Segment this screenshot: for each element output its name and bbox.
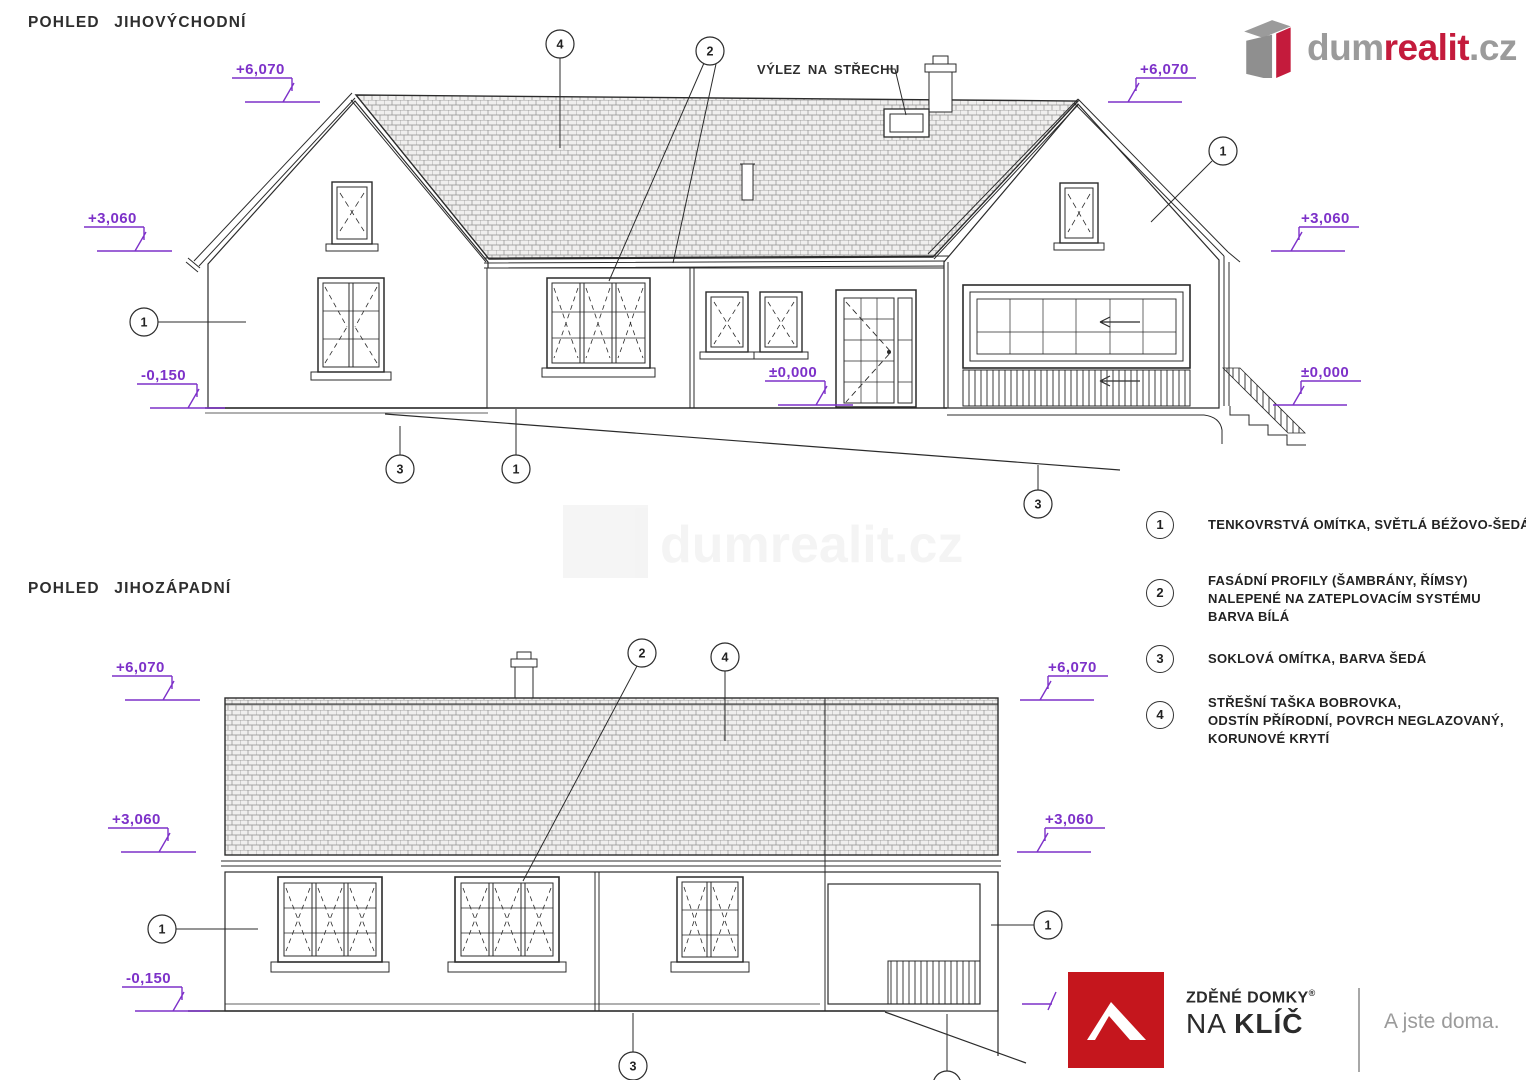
legend-circle-1: 1 xyxy=(1146,511,1174,539)
legend-item-2-text: BARVA BÍLÁ xyxy=(1208,608,1481,626)
zdene-domky-line2: NA KLÍČ xyxy=(1186,1008,1303,1040)
svg-text:+6,070: +6,070 xyxy=(1140,61,1189,78)
terrace-railing xyxy=(963,370,1190,406)
svg-text:3: 3 xyxy=(397,463,404,477)
callout-1: 1 xyxy=(130,308,158,336)
zdene-domky-logo-mark[interactable] xyxy=(1068,972,1164,1068)
svg-text:1: 1 xyxy=(513,463,520,477)
legend-item-2-text: NALEPENÉ NA ZATEPLOVACÍM SYSTÉMU xyxy=(1208,590,1481,608)
legend-circle-2: 2 xyxy=(1146,579,1174,607)
vent-pipe xyxy=(740,164,755,200)
svg-text:4: 4 xyxy=(557,38,564,52)
dumrealit-cz: .cz xyxy=(1469,27,1517,68)
legend-item-4-text: STŘEŠNÍ TAŠKA BOBROVKA, xyxy=(1208,694,1504,712)
legend-item-3: 3 SOKLOVÁ OMÍTKA, BARVA ŠEDÁ xyxy=(1146,645,1516,685)
legend-item-1: 1 TENKOVRSTVÁ OMÍTKA, SVĚTLÁ BÉŽOVO-ŠEDÁ xyxy=(1146,511,1516,551)
legend-item-1-text: TENKOVRSTVÁ OMÍTKA, SVĚTLÁ BÉŽOVO-ŠEDÁ xyxy=(1208,516,1526,534)
eave-band xyxy=(221,861,1001,872)
terrace-edge xyxy=(947,415,1222,444)
zdene-domky-tagline: A jste doma. xyxy=(1384,1010,1500,1034)
drawing-sheet: { "page": { "title_top": "POHLED JIHOVÝC… xyxy=(0,0,1526,1080)
chimney xyxy=(511,652,537,700)
callout-3: 3 xyxy=(1024,490,1052,518)
left-gutter xyxy=(186,258,200,272)
terrain-slope xyxy=(885,1012,1026,1063)
legend-circle-3: 3 xyxy=(1146,645,1174,673)
svg-text:±0,000: ±0,000 xyxy=(769,364,817,381)
callout-1: 1 xyxy=(1034,911,1062,939)
svg-text:2: 2 xyxy=(707,45,714,59)
svg-text:3: 3 xyxy=(630,1060,637,1074)
svg-text:2: 2 xyxy=(639,647,646,661)
svg-text:1: 1 xyxy=(141,316,148,330)
chimney xyxy=(925,56,956,112)
legend-circle-4: 4 xyxy=(1146,701,1174,729)
callout-2: 2 xyxy=(628,639,656,667)
svg-text:dumrealit.cz: dumrealit.cz xyxy=(660,516,963,574)
callout-partial xyxy=(933,1071,961,1080)
svg-text:+6,070: +6,070 xyxy=(116,659,165,676)
svg-text:±0,000: ±0,000 xyxy=(1301,364,1349,381)
legend-item-2: 2 FASÁDNÍ PROFILY (ŠAMBRÁNY, ŘÍMSY) NALE… xyxy=(1146,572,1516,630)
legend-item-4-text: KORUNOVÉ KRYTÍ xyxy=(1208,730,1504,748)
callout-4: 4 xyxy=(546,30,574,58)
partial-level-mark xyxy=(1022,992,1056,1010)
svg-text:-0,150: -0,150 xyxy=(126,970,171,987)
callout-1: 1 xyxy=(502,455,530,483)
legend-item-3-text: SOKLOVÁ OMÍTKA, BARVA ŠEDÁ xyxy=(1208,650,1426,668)
garage-railing xyxy=(888,961,980,1004)
dumrealit-logo[interactable]: dumrealit.cz xyxy=(1243,16,1517,78)
svg-text:+6,070: +6,070 xyxy=(236,61,285,78)
watermark: dumrealit.cz xyxy=(563,505,963,578)
dumrealit-building-icon xyxy=(1243,16,1297,78)
southwest-elevation xyxy=(176,652,1034,1071)
svg-text:+3,060: +3,060 xyxy=(1301,210,1350,227)
wall xyxy=(225,872,998,1011)
stair-railing xyxy=(1223,368,1305,433)
legend-item-4: 4 STŘEŠNÍ TAŠKA BOBROVKA, ODSTÍN PŘÍRODN… xyxy=(1146,694,1516,752)
callout-3: 3 xyxy=(386,455,414,483)
svg-text:+6,070: +6,070 xyxy=(1048,659,1097,676)
callout-1: 1 xyxy=(1209,137,1237,165)
legend-item-4-text: ODSTÍN PŘÍRODNÍ, POVRCH NEGLAZOVANÝ, xyxy=(1208,712,1504,730)
svg-text:1: 1 xyxy=(1045,919,1052,933)
svg-text:+3,060: +3,060 xyxy=(112,811,161,828)
roof-icon xyxy=(1080,988,1152,1052)
zdene-domky-line1: ZDĚNÉ DOMKY® xyxy=(1186,988,1316,1007)
southeast-elevation xyxy=(158,56,1306,490)
svg-text:3: 3 xyxy=(1035,498,1042,512)
dumrealit-wordmark: dumrealit.cz xyxy=(1307,29,1517,66)
callout-4: 4 xyxy=(711,643,739,671)
svg-text:1: 1 xyxy=(1220,145,1227,159)
legend-item-2-text: FASÁDNÍ PROFILY (ŠAMBRÁNY, ŘÍMSY) xyxy=(1208,572,1481,590)
svg-text:+3,060: +3,060 xyxy=(1045,811,1094,828)
svg-text:-0,150: -0,150 xyxy=(141,367,186,384)
callout-3: 3 xyxy=(619,1052,647,1080)
svg-text:+3,060: +3,060 xyxy=(88,210,137,227)
registered-icon: ® xyxy=(1309,988,1316,998)
terrain-slope xyxy=(385,414,1120,470)
callout-2: 2 xyxy=(696,37,724,65)
roof-access-hatch xyxy=(884,109,929,137)
callout-1: 1 xyxy=(148,915,176,943)
roof-access-label: VÝLEZ NA STŘECHU xyxy=(757,62,900,77)
roof xyxy=(225,698,998,855)
logo-divider xyxy=(1358,988,1360,1072)
dumrealit-realit: realit xyxy=(1384,27,1469,68)
svg-text:4: 4 xyxy=(722,651,729,665)
svg-text:1: 1 xyxy=(159,923,166,937)
dumrealit-dum: dum xyxy=(1307,27,1384,68)
